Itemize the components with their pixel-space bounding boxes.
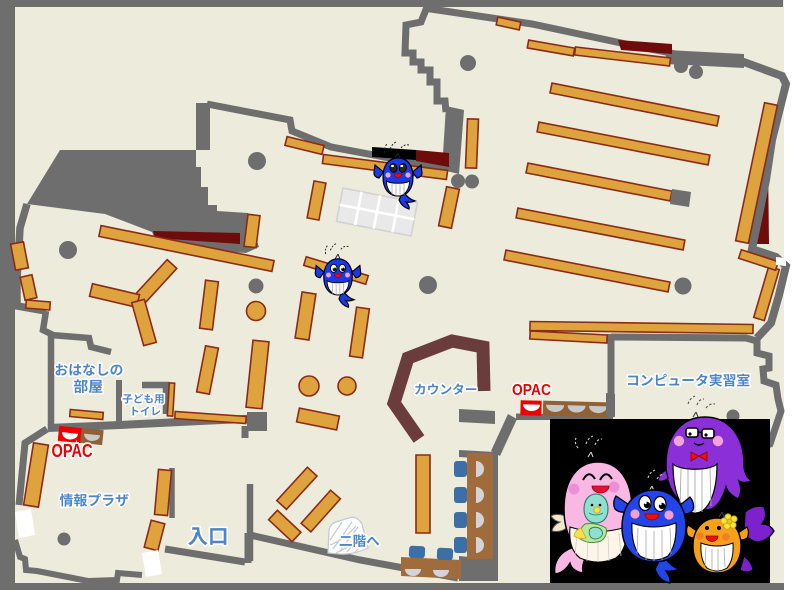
svg-text:OPAC: OPAC <box>512 382 551 399</box>
svg-text:OPAC: OPAC <box>52 440 93 461</box>
